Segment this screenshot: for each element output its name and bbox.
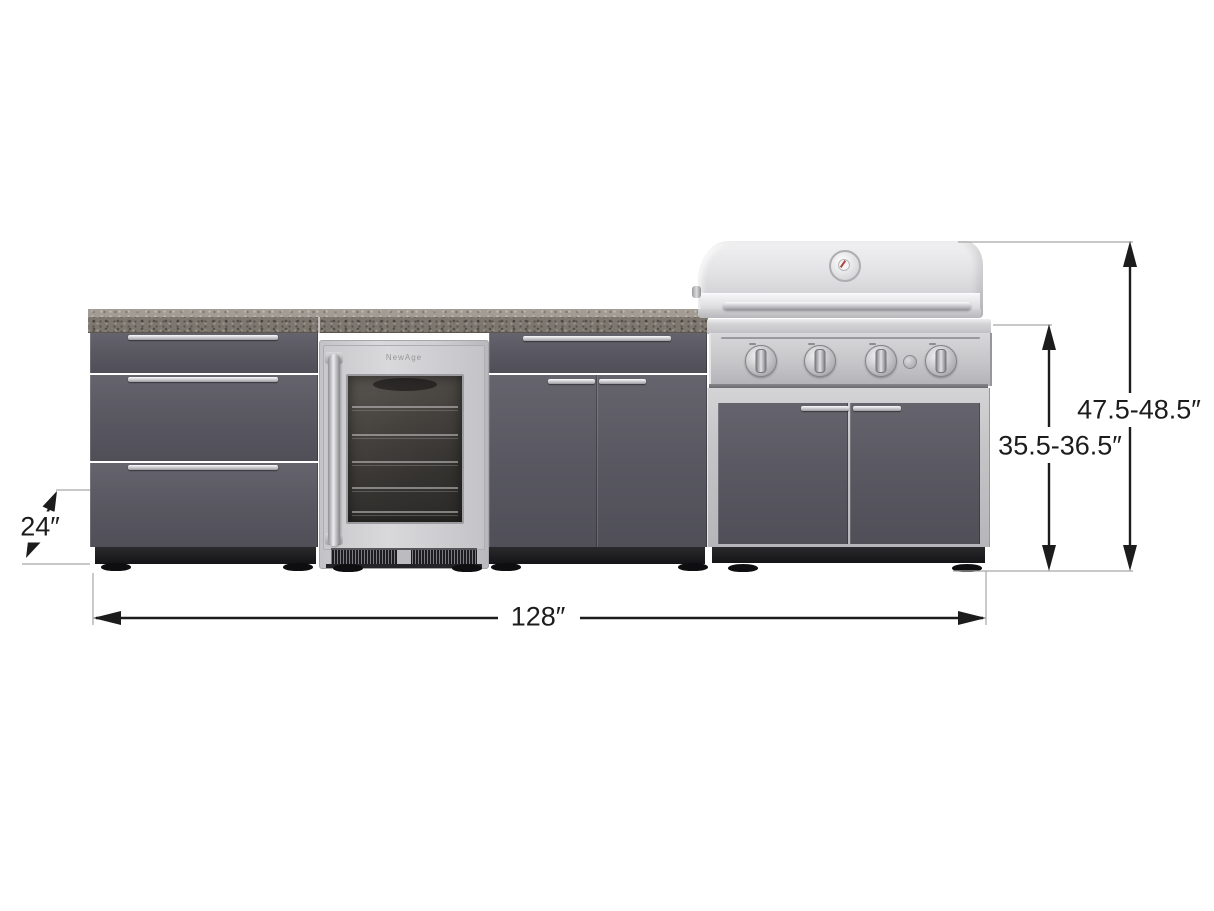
toe-kick — [712, 547, 985, 563]
door-handle — [548, 379, 595, 384]
fridge-shelf — [352, 406, 458, 408]
toe-kick — [95, 547, 316, 564]
drawer-handle — [128, 377, 278, 382]
countertop-edge — [88, 317, 708, 333]
arrow-up — [1042, 324, 1056, 350]
knob-mark — [869, 343, 876, 345]
cabinet-door — [850, 403, 980, 544]
fridge-shelf — [352, 434, 458, 436]
countertop-seam — [318, 317, 320, 333]
burner-knob-icon — [745, 345, 777, 377]
drawer — [90, 375, 318, 461]
three-drawer-cabinet — [90, 333, 316, 547]
dimension-label-counter-height: 35.5-36.5″ — [994, 431, 1126, 462]
leveling-foot — [452, 564, 482, 572]
arrow-down — [1042, 545, 1056, 571]
drawer-handle — [128, 335, 278, 340]
fridge-shelf — [352, 461, 458, 463]
fridge-shelf — [352, 487, 458, 489]
knob-grip — [876, 349, 887, 373]
fridge-glass-door — [346, 374, 464, 524]
knob-grip — [815, 349, 826, 373]
diagram-canvas: NewAge — [0, 0, 1214, 911]
grill-hood-handle — [723, 302, 971, 309]
dimension-label-total-width: 128″ — [507, 602, 570, 633]
arrow-left — [93, 611, 121, 625]
grill-hood-lip — [698, 309, 981, 318]
fridge-shelf — [352, 511, 458, 513]
door-handle — [853, 406, 901, 411]
arrow-down — [1123, 545, 1137, 571]
arrow-up — [1123, 241, 1137, 267]
grill-cabinet — [707, 388, 990, 547]
countertop — [88, 309, 708, 333]
bar-cabinet — [489, 333, 705, 547]
knob-grip — [936, 349, 947, 373]
dimension-label-depth: 24″ — [16, 512, 64, 543]
arrow-right — [958, 611, 986, 625]
drawer-handle — [128, 465, 278, 470]
dimension-label-overall-height: 47.5-48.5″ — [1073, 395, 1205, 426]
drawer — [90, 463, 318, 547]
leveling-foot — [952, 564, 982, 572]
igniter-button-icon — [903, 355, 917, 369]
door-handle — [599, 379, 646, 384]
leveling-foot — [491, 563, 521, 571]
leveling-foot — [333, 564, 363, 572]
fridge-handle — [328, 354, 340, 546]
cabinet-door — [489, 375, 597, 547]
drawer-handle — [523, 336, 671, 341]
arrow-up-right — [43, 491, 58, 512]
door-handle — [801, 406, 849, 411]
thermometer-icon — [829, 250, 861, 282]
leveling-foot — [283, 563, 313, 571]
knob-mark — [808, 343, 815, 345]
fridge-interior-vent — [373, 378, 437, 391]
knob-grip — [756, 349, 767, 373]
leveling-foot — [101, 563, 131, 571]
countertop-surface — [88, 309, 708, 317]
burner-knob-icon — [804, 345, 836, 377]
toe-kick — [489, 547, 705, 564]
grill-hood — [698, 241, 983, 318]
leveling-foot — [678, 563, 708, 571]
burner-knob-icon — [865, 345, 897, 377]
leveling-foot — [728, 564, 758, 572]
hood-hinge-pin — [692, 286, 701, 298]
control-panel-groove — [721, 337, 980, 339]
beverage-fridge: NewAge — [319, 340, 489, 569]
burner-knob-icon — [925, 345, 957, 377]
knob-mark — [749, 343, 756, 345]
cabinet-door — [597, 375, 707, 547]
cabinet-door — [718, 403, 848, 544]
grill-island-top — [707, 319, 991, 334]
fridge-brand-logo: NewAge — [320, 353, 488, 362]
grill-control-panel — [709, 333, 992, 386]
knob-mark — [929, 343, 936, 345]
